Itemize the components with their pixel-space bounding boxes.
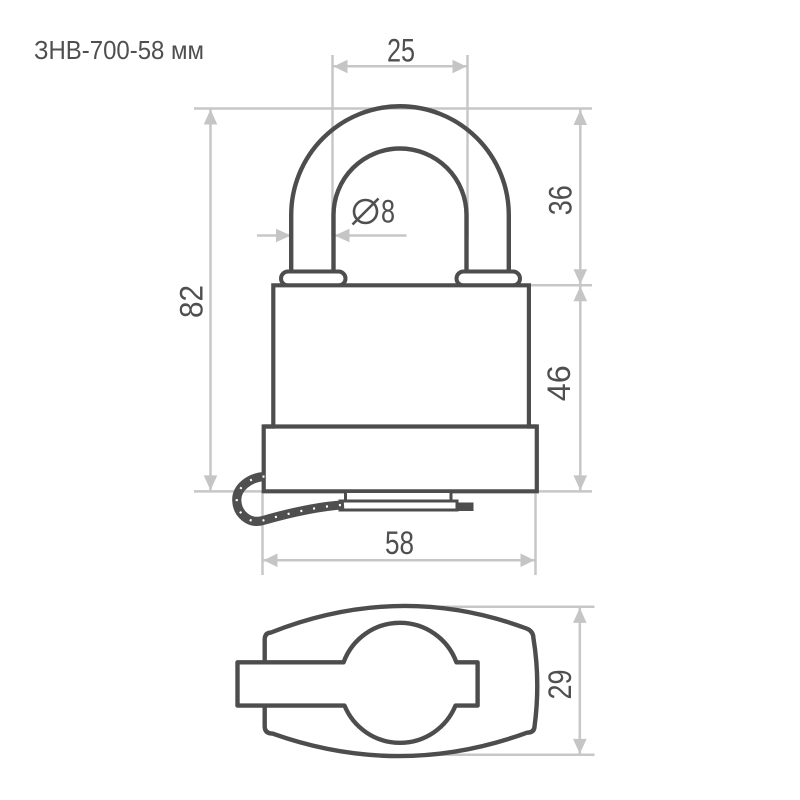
svg-text:82: 82 bbox=[174, 285, 210, 318]
svg-text:46: 46 bbox=[541, 365, 577, 401]
svg-text:36: 36 bbox=[543, 185, 579, 215]
svg-text:29: 29 bbox=[542, 670, 578, 700]
svg-text:8: 8 bbox=[381, 194, 395, 230]
svg-text:ЗНВ-700-58 мм: ЗНВ-700-58 мм bbox=[34, 35, 204, 65]
svg-text:58: 58 bbox=[385, 525, 414, 561]
svg-text:25: 25 bbox=[387, 33, 415, 69]
